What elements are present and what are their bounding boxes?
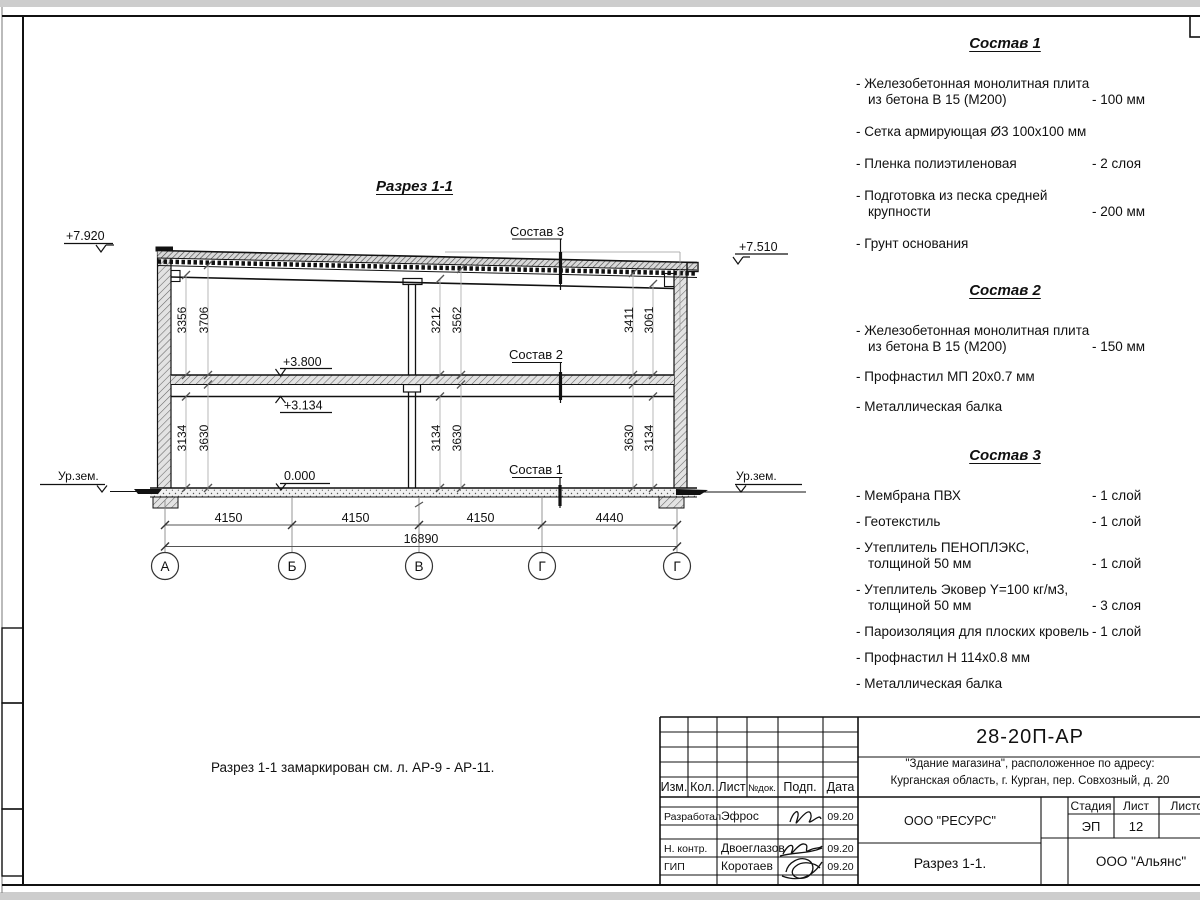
- elevation-marks: [40, 244, 802, 493]
- axis-label-b: Б: [288, 559, 297, 574]
- composition-1: Состав 1 - Железобетонная монолитная пли…: [856, 36, 1154, 268]
- sheet-number: 12: [1129, 819, 1143, 834]
- dim-lower-1: 3134: [175, 424, 189, 451]
- dim-lower-6: 3134: [642, 424, 656, 451]
- dim-lower-2: 3630: [197, 424, 211, 451]
- layer-text: - Металлическая балка: [856, 399, 1092, 415]
- signer-row-developer: Разработал Эфрос 09.20: [664, 809, 854, 823]
- title-block: 28-20П-АР "Здание магазина", расположенн…: [660, 717, 1200, 885]
- dim-upper-2: 3706: [197, 306, 211, 333]
- ground-level-label-left: Ур.зем.: [58, 469, 99, 483]
- client-org: ООО "Альянс": [1096, 854, 1186, 869]
- dim-lower-4: 3630: [450, 424, 464, 451]
- section-drawing: +7.920 +7.510 +3.800 +3.134 0.000 Ур.зем…: [40, 224, 806, 508]
- axis-label-v: В: [414, 559, 423, 574]
- signer-role: Н. контр.: [664, 843, 707, 855]
- layer-item: - Пленка полиэтиленовая - 2 слоя: [856, 156, 1154, 172]
- object-name-line2: Курганская область, г. Курган, пер. Совх…: [891, 775, 1170, 787]
- ground-level-label-right: Ур.зем.: [736, 469, 777, 483]
- layer-item: - Грунт основания: [856, 236, 1154, 252]
- layer-text: - Утеплитель ПЕНОПЛЭКС, толщиной 50 мм: [856, 540, 1092, 572]
- callout-sostav-2: Состав 2: [509, 347, 563, 362]
- designer-org: ООО "РЕСУРС": [904, 814, 996, 828]
- axis-label-g2: Г: [673, 559, 681, 574]
- signature: [790, 812, 821, 823]
- axis-label-g1: Г: [538, 559, 546, 574]
- signer-name: Коротаев: [721, 859, 773, 873]
- elevation-floor: +3.800: [283, 355, 322, 369]
- stage-label: Стадия: [1071, 799, 1112, 813]
- layer-value: - 100 мм: [1092, 92, 1154, 108]
- layer-text: - Подготовка из песка средней крупности: [856, 188, 1092, 220]
- dim-upper-5: 3411: [622, 307, 636, 333]
- section-name: Разрез 1-1.: [914, 855, 987, 871]
- layer-text: - Железобетонная монолитная плита из бет…: [856, 76, 1092, 108]
- layer-value: - 1 слой: [1092, 624, 1154, 640]
- signer-date: 09.20: [827, 843, 853, 855]
- elevation-roof-left: +7.920: [66, 229, 105, 243]
- layer-text: - Геотекстиль: [856, 514, 1092, 530]
- signer-name: Двоеглазов: [721, 841, 785, 855]
- layer-text: - Профнастил Н 114х0.8 мм: [856, 650, 1092, 666]
- layer-item: - Мембрана ПВХ - 1 слой: [856, 488, 1154, 504]
- elevation-roof-right: +7.510: [739, 240, 778, 254]
- total-dim: 16890: [404, 532, 439, 546]
- axis-label-a: А: [160, 559, 169, 574]
- signer-role: Разработал: [664, 811, 721, 823]
- layer-text: - Сетка армирующая Ø3 100х100 мм: [856, 124, 1092, 140]
- layer-value: - 1 слой: [1092, 488, 1154, 504]
- composition-title: Состав 3: [856, 448, 1154, 464]
- elevation-ground: 0.000: [284, 469, 315, 483]
- layer-value: - 2 слоя: [1092, 156, 1154, 172]
- beam-seat-right: [665, 274, 675, 287]
- layer-item: - Подготовка из песка средней крупности …: [856, 188, 1154, 220]
- signer-row-control: Н. контр. Двоеглазов 09.20: [664, 841, 854, 856]
- signer-name: Эфрос: [721, 809, 759, 823]
- floor-slab: [171, 375, 674, 397]
- layer-value: - 1 слой: [1092, 514, 1154, 530]
- composition-title: Состав 1: [856, 36, 1154, 52]
- rev-header-kol: Кол.: [690, 780, 715, 794]
- layer-value: - 200 мм: [1092, 204, 1154, 220]
- layer-text: - Пленка полиэтиленовая: [856, 156, 1092, 172]
- signature: [782, 859, 822, 879]
- stage-value: ЭП: [1082, 819, 1101, 834]
- layer-value: - 1 слой: [1092, 556, 1154, 572]
- footing-right: [659, 497, 684, 508]
- layer-item: - Пароизоляция для плоских кровель - 1 с…: [856, 624, 1154, 640]
- layer-item: - Железобетонная монолитная плита из бет…: [856, 76, 1154, 108]
- axis-bubbles: А Б В Г Г: [152, 553, 691, 580]
- span-dim-2: 4150: [342, 511, 370, 525]
- layer-text: - Утеплитель Эковер Y=100 кг/м3, толщино…: [856, 582, 1092, 614]
- dim-upper-4: 3562: [450, 306, 464, 333]
- signature: [780, 844, 822, 856]
- dim-upper-6: 3061: [642, 306, 656, 333]
- callout-sostav-3: Состав 3: [510, 224, 564, 239]
- section-title: Разрез 1-1: [376, 178, 453, 195]
- layer-value: - 150 мм: [1092, 339, 1154, 355]
- layer-item: - Профнастил Н 114х0.8 мм: [856, 650, 1154, 666]
- wall-right: [674, 263, 687, 497]
- left-margin-boxes: [2, 628, 23, 876]
- doc-number: 28-20П-АР: [976, 726, 1084, 748]
- footing-left: [153, 497, 178, 508]
- dimensions: 3356 3706 3212 3562 3411 3061 3134 3630 …: [152, 261, 691, 580]
- composition-2: Состав 2 - Железобетонная монолитная пли…: [856, 283, 1154, 429]
- layer-text: - Пароизоляция для плоских кровель: [856, 624, 1092, 640]
- section-note: Разрез 1-1 замаркирован см. л. АР-9 - АР…: [211, 760, 494, 775]
- signer-row-gip: ГИП Коротаев 09.20: [664, 859, 854, 879]
- layer-text: - Железобетонная монолитная плита из бет…: [856, 323, 1092, 355]
- sheets-label: Листов: [1171, 799, 1200, 813]
- rev-header-podp: Подп.: [783, 780, 816, 794]
- composition-title: Состав 2: [856, 283, 1154, 299]
- drawing-sheet: +7.920 +7.510 +3.800 +3.134 0.000 Ур.зем…: [0, 0, 1200, 900]
- dim-upper-1: 3356: [175, 306, 189, 333]
- layer-text: - Грунт основания: [856, 236, 1092, 252]
- rev-header-data: Дата: [827, 780, 855, 794]
- rev-header-dok: №док.: [748, 783, 776, 794]
- layer-item: - Металлическая балка: [856, 399, 1154, 415]
- layer-text: - Металлическая балка: [856, 676, 1092, 692]
- roof-assembly: [158, 251, 699, 289]
- layer-item: - Металлическая балка: [856, 676, 1154, 692]
- span-dim-1: 4150: [215, 511, 243, 525]
- callout-sostav-1: Состав 1: [509, 462, 563, 477]
- sheet-label: Лист: [1123, 799, 1150, 813]
- composition-3: Состав 3 - Мембрана ПВХ - 1 слой - Геоте…: [856, 448, 1154, 702]
- elevation-beam: +3.134: [284, 399, 323, 413]
- span-dim-4: 4440: [596, 511, 624, 525]
- wall-left: [158, 248, 172, 497]
- layer-item: - Сетка армирующая Ø3 100х100 мм: [856, 124, 1154, 140]
- dim-lower-3: 3134: [429, 424, 443, 451]
- dim-lower-5: 3630: [622, 424, 636, 451]
- beam-seat-left: [171, 271, 180, 282]
- layer-item: - Утеплитель ПЕНОПЛЭКС, толщиной 50 мм -…: [856, 540, 1154, 572]
- object-name-line1: "Здание магазина", расположенное по адре…: [905, 758, 1154, 770]
- layer-item: - Утеплитель Эковер Y=100 кг/м3, толщино…: [856, 582, 1154, 614]
- layer-item: - Железобетонная монолитная плита из бет…: [856, 323, 1154, 355]
- signer-date: 09.20: [827, 861, 853, 873]
- layer-value: - 3 слоя: [1092, 598, 1154, 614]
- layer-item: - Геотекстиль - 1 слой: [856, 514, 1154, 530]
- layer-item: - Профнастил МП 20х0.7 мм: [856, 369, 1154, 385]
- span-dim-3: 4150: [467, 511, 495, 525]
- signer-role: ГИП: [664, 861, 685, 873]
- dim-upper-3: 3212: [429, 306, 443, 333]
- rev-header-izm: Изм.: [661, 780, 688, 794]
- layer-text: - Профнастил МП 20х0.7 мм: [856, 369, 1092, 385]
- signer-date: 09.20: [827, 811, 853, 823]
- layer-text: - Мембрана ПВХ: [856, 488, 1092, 504]
- frame-corner-box: [1190, 16, 1200, 37]
- rev-header-list: Лист: [718, 780, 745, 794]
